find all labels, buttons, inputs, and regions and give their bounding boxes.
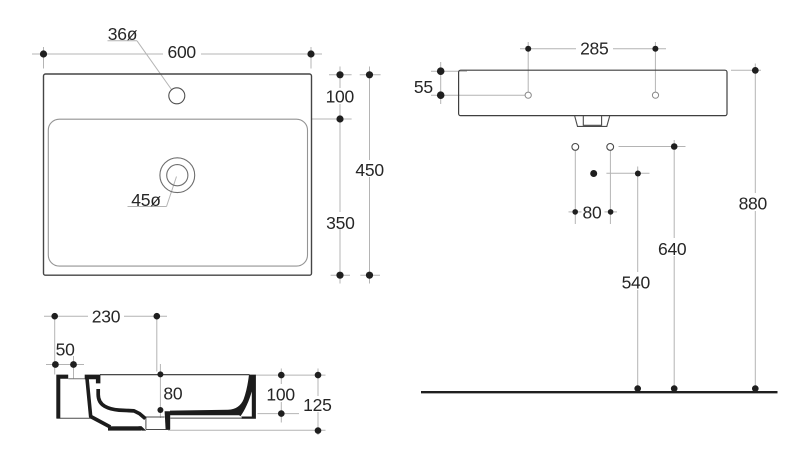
svg-text:600: 600 xyxy=(167,42,196,62)
svg-text:125: 125 xyxy=(303,395,331,415)
svg-text:450: 450 xyxy=(355,160,384,180)
svg-text:540: 540 xyxy=(622,273,651,293)
svg-text:230: 230 xyxy=(92,307,121,327)
svg-text:80: 80 xyxy=(583,203,602,223)
svg-text:36ø: 36ø xyxy=(108,24,138,44)
svg-text:640: 640 xyxy=(658,239,687,259)
svg-text:100: 100 xyxy=(266,385,295,405)
svg-text:350: 350 xyxy=(326,213,355,233)
svg-text:880: 880 xyxy=(739,194,768,214)
svg-text:80: 80 xyxy=(163,383,182,403)
svg-text:100: 100 xyxy=(326,87,355,107)
svg-text:285: 285 xyxy=(580,39,608,59)
svg-text:50: 50 xyxy=(56,340,75,360)
svg-text:45ø: 45ø xyxy=(131,190,161,210)
svg-text:55: 55 xyxy=(414,77,433,97)
